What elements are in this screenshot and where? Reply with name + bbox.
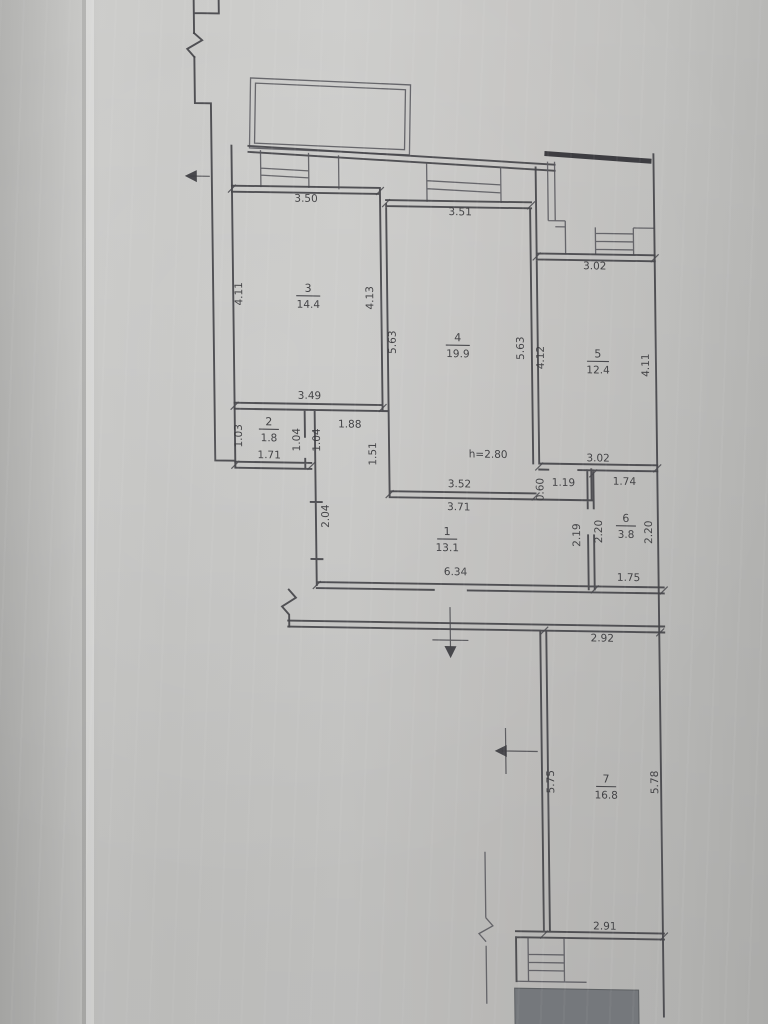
scanned-page: 3.50 3 14.4 3.49 4.11 4.13 3.51 4 19.9 h…	[0, 0, 768, 1024]
break-symbol-bottom-icon	[479, 918, 493, 942]
right-exterior-wall	[653, 154, 664, 1016]
dim-room6-right: 2.20	[643, 520, 655, 544]
dim-room5-top: 3.02	[583, 260, 607, 272]
dim-room5-bottom: 3.02	[586, 452, 610, 464]
dim-room7-right: 5.78	[649, 771, 661, 795]
dim-room4-bottom-inner: 3.52	[448, 478, 472, 490]
dim-room7-bottom: 2.91	[593, 920, 617, 932]
dim-room3-right: 4.13	[364, 286, 376, 310]
room1-area: 13.1	[436, 542, 460, 554]
room5-area: 12.4	[586, 364, 610, 376]
dim-niche-height: 0.60	[534, 478, 546, 502]
dim-room6-outside-left: 2.19	[571, 523, 583, 547]
ceiling-height-note: h=2.80	[469, 448, 508, 461]
room2-number: 2	[265, 415, 272, 428]
room1-number: 1	[443, 525, 450, 538]
dim-room3-bottom: 3.49	[298, 390, 322, 402]
dim-room2-left: 1.03	[233, 424, 245, 448]
room3-area: 14.4	[297, 299, 321, 311]
room7-area: 16.8	[594, 789, 618, 801]
dim-room3-top: 3.50	[294, 193, 318, 205]
entrance-arrows	[185, 170, 538, 775]
dim-hall-left: 1.51	[367, 442, 379, 466]
room7-number: 7	[602, 773, 609, 786]
window-room5-icon	[595, 227, 654, 255]
arrow-left-icon	[185, 170, 210, 182]
dim-room6-bottom: 1.75	[617, 572, 641, 584]
dim-room4-bottom-outer: 3.71	[447, 501, 471, 513]
room6-area: 3.8	[618, 529, 635, 541]
labels-layer: 3.50 3 14.4 3.49 4.11 4.13 3.51 4 19.9 h…	[230, 192, 663, 934]
balcony-right	[544, 154, 654, 256]
exterior-left-wall	[187, 0, 236, 467]
dim-room1-left: 2.04	[320, 504, 332, 528]
dim-room7-left: 5.75	[545, 770, 557, 794]
adjacent-balcony-block	[515, 988, 639, 1024]
walls-layer	[231, 148, 668, 1017]
arrow-down-icon	[432, 607, 469, 659]
break-symbol-top-left-icon	[187, 33, 202, 57]
neighbor-wall-line	[485, 852, 487, 1004]
dim-room2-right-upper: 1.04	[291, 428, 303, 452]
dim-niche-width: 1.19	[552, 477, 576, 489]
room5-number: 5	[594, 347, 601, 360]
balcony-right-walls	[548, 162, 566, 254]
balcony-top	[249, 78, 410, 155]
dim-room7-top: 2.92	[591, 632, 615, 644]
floor-plan-drawing: 3.50 3 14.4 3.49 4.11 4.13 3.51 4 19.9 h…	[0, 0, 768, 1024]
dim-room4-right: 5.63	[515, 336, 527, 360]
room3-number: 3	[305, 282, 312, 295]
room4-number: 4	[454, 331, 461, 344]
balcony-right-rail	[544, 154, 651, 162]
wall-left	[194, 0, 236, 467]
dim-hall-top: 1.88	[338, 418, 362, 430]
drawing-root: 3.50 3 14.4 3.49 4.11 4.13 3.51 4 19.9 h…	[183, 0, 673, 1024]
dim-room2-right-lower: 1.04	[311, 428, 323, 452]
dim-room2-bottom: 1.71	[257, 449, 281, 461]
dim-room1-bottom: 6.34	[444, 566, 468, 578]
dimension-ticks	[228, 185, 672, 941]
balcony-top-outline	[249, 78, 410, 155]
arrow-room7-icon	[494, 728, 538, 775]
window-room4-icon	[427, 163, 501, 203]
dim-room6-left: 2.20	[593, 520, 605, 544]
room4-area: 19.9	[446, 348, 470, 360]
room6-number: 6	[622, 512, 629, 525]
dim-room5-right: 4.11	[640, 353, 652, 377]
dim-room3-left: 4.11	[233, 282, 245, 306]
dim-room4-left: 5.63	[387, 330, 399, 354]
dim-room5-left: 4.12	[535, 346, 547, 370]
balcony-bottom-window-icon	[516, 937, 587, 982]
room2-area: 1.8	[261, 432, 278, 444]
dim-room6-top: 1.74	[613, 476, 637, 488]
dim-room4-top: 3.51	[448, 206, 472, 218]
